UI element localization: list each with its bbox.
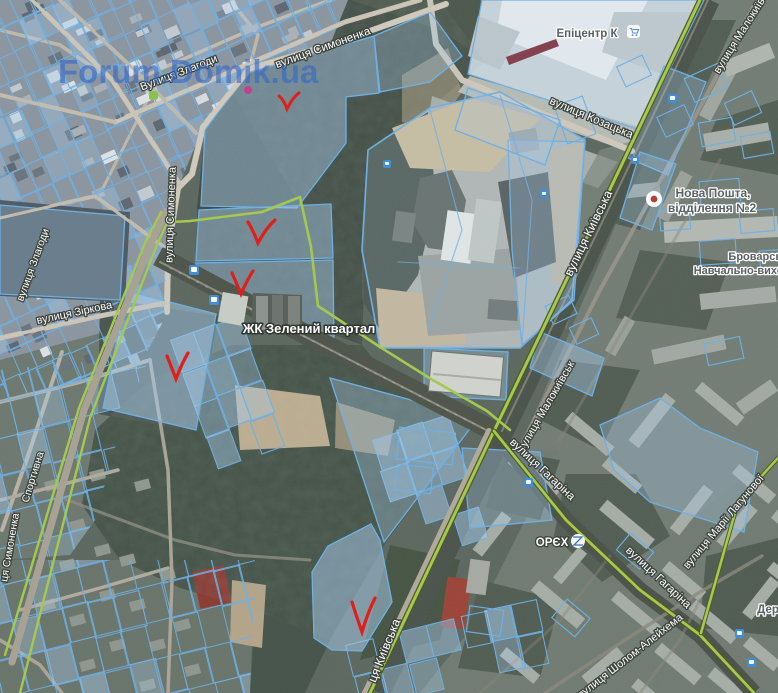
svg-text:відділення №2: відділення №2 xyxy=(668,201,757,215)
svg-text:Нова Пошта,: Нова Пошта, xyxy=(675,186,750,200)
svg-text:ЖК Зелений квартал: ЖК Зелений квартал xyxy=(242,321,376,336)
svg-text:ОРЄХ: ОРЄХ xyxy=(536,537,569,549)
svg-text:Forum.Domik.ua: Forum.Domik.ua xyxy=(58,53,319,90)
svg-text:Епіцентр К: Епіцентр К xyxy=(556,28,618,40)
svg-text:Дер: Дер xyxy=(757,604,778,616)
svg-text:Броварськ: Броварськ xyxy=(728,251,778,263)
svg-text:Навчально-вихов: Навчально-вихов xyxy=(694,265,778,277)
